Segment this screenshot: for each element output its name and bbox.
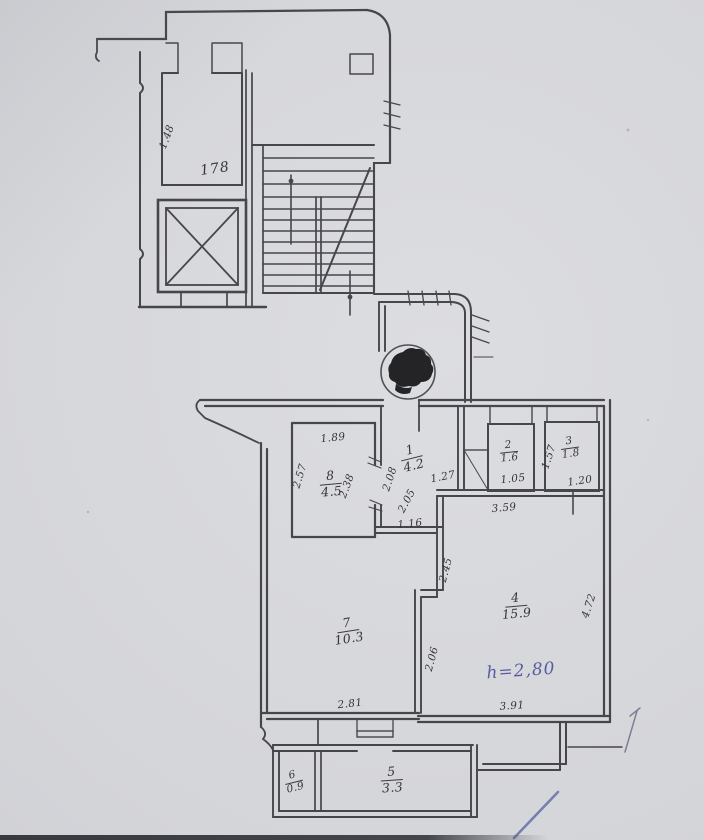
room-2-label: 2 1.6 [494, 438, 524, 465]
dim-vestibule-width: 178 [199, 159, 231, 179]
photo-edge-shadow [0, 835, 548, 840]
room-4-label: 4 15.9 [500, 591, 532, 622]
dim-divider-upper: 2.45 [437, 556, 455, 583]
height-annotation: h=2,80 [486, 659, 556, 684]
dim-room8-width: 1.89 [320, 431, 346, 446]
dim-hall-left: 2.08 [380, 465, 399, 492]
dim-divider-lower: 2.06 [423, 645, 441, 672]
room-7-area: 10.3 [334, 629, 365, 647]
room-3-label: 3 1.8 [554, 434, 585, 462]
room-5-area: 3.3 [382, 780, 404, 795]
dim-room4-top: 3.59 [491, 501, 517, 515]
dim-room4-bottom: 3.91 [499, 699, 525, 713]
room-1-label: 1 4.2 [398, 441, 427, 474]
room-3-area: 1.8 [556, 447, 585, 462]
dim-room4-right: 4.72 [579, 592, 598, 619]
dim-room2-width: 1.05 [500, 472, 526, 487]
room-5-label: 5 3.3 [380, 765, 404, 795]
room-1-area: 4.2 [402, 456, 426, 474]
room-4-area: 15.9 [501, 605, 532, 621]
dim-vestibule-depth: 1.48 [157, 123, 177, 151]
room-2-area: 1.6 [495, 451, 524, 466]
room-6-label: 6 0.9 [278, 767, 311, 797]
room-7-label: 7 10.3 [331, 615, 365, 648]
dim-room7-bottom: 2.81 [337, 697, 363, 712]
dim-hall-bottom: 1.16 [397, 517, 423, 532]
dim-room3-depth: 1.57 [539, 443, 558, 470]
dim-hall-inner: 2.05 [396, 487, 418, 515]
labels-layer: 1.48 178 1 4.2 2 1.6 3 1.8 4 15.9 5 3.3 … [0, 0, 704, 840]
dim-room3-width: 1.20 [567, 473, 593, 488]
dim-hall-right: 1.27 [430, 469, 457, 486]
dim-room8-depth: 2.57 [291, 462, 310, 489]
floor-plan-photo: 1.48 178 1 4.2 2 1.6 3 1.8 4 15.9 5 3.3 … [0, 0, 704, 840]
